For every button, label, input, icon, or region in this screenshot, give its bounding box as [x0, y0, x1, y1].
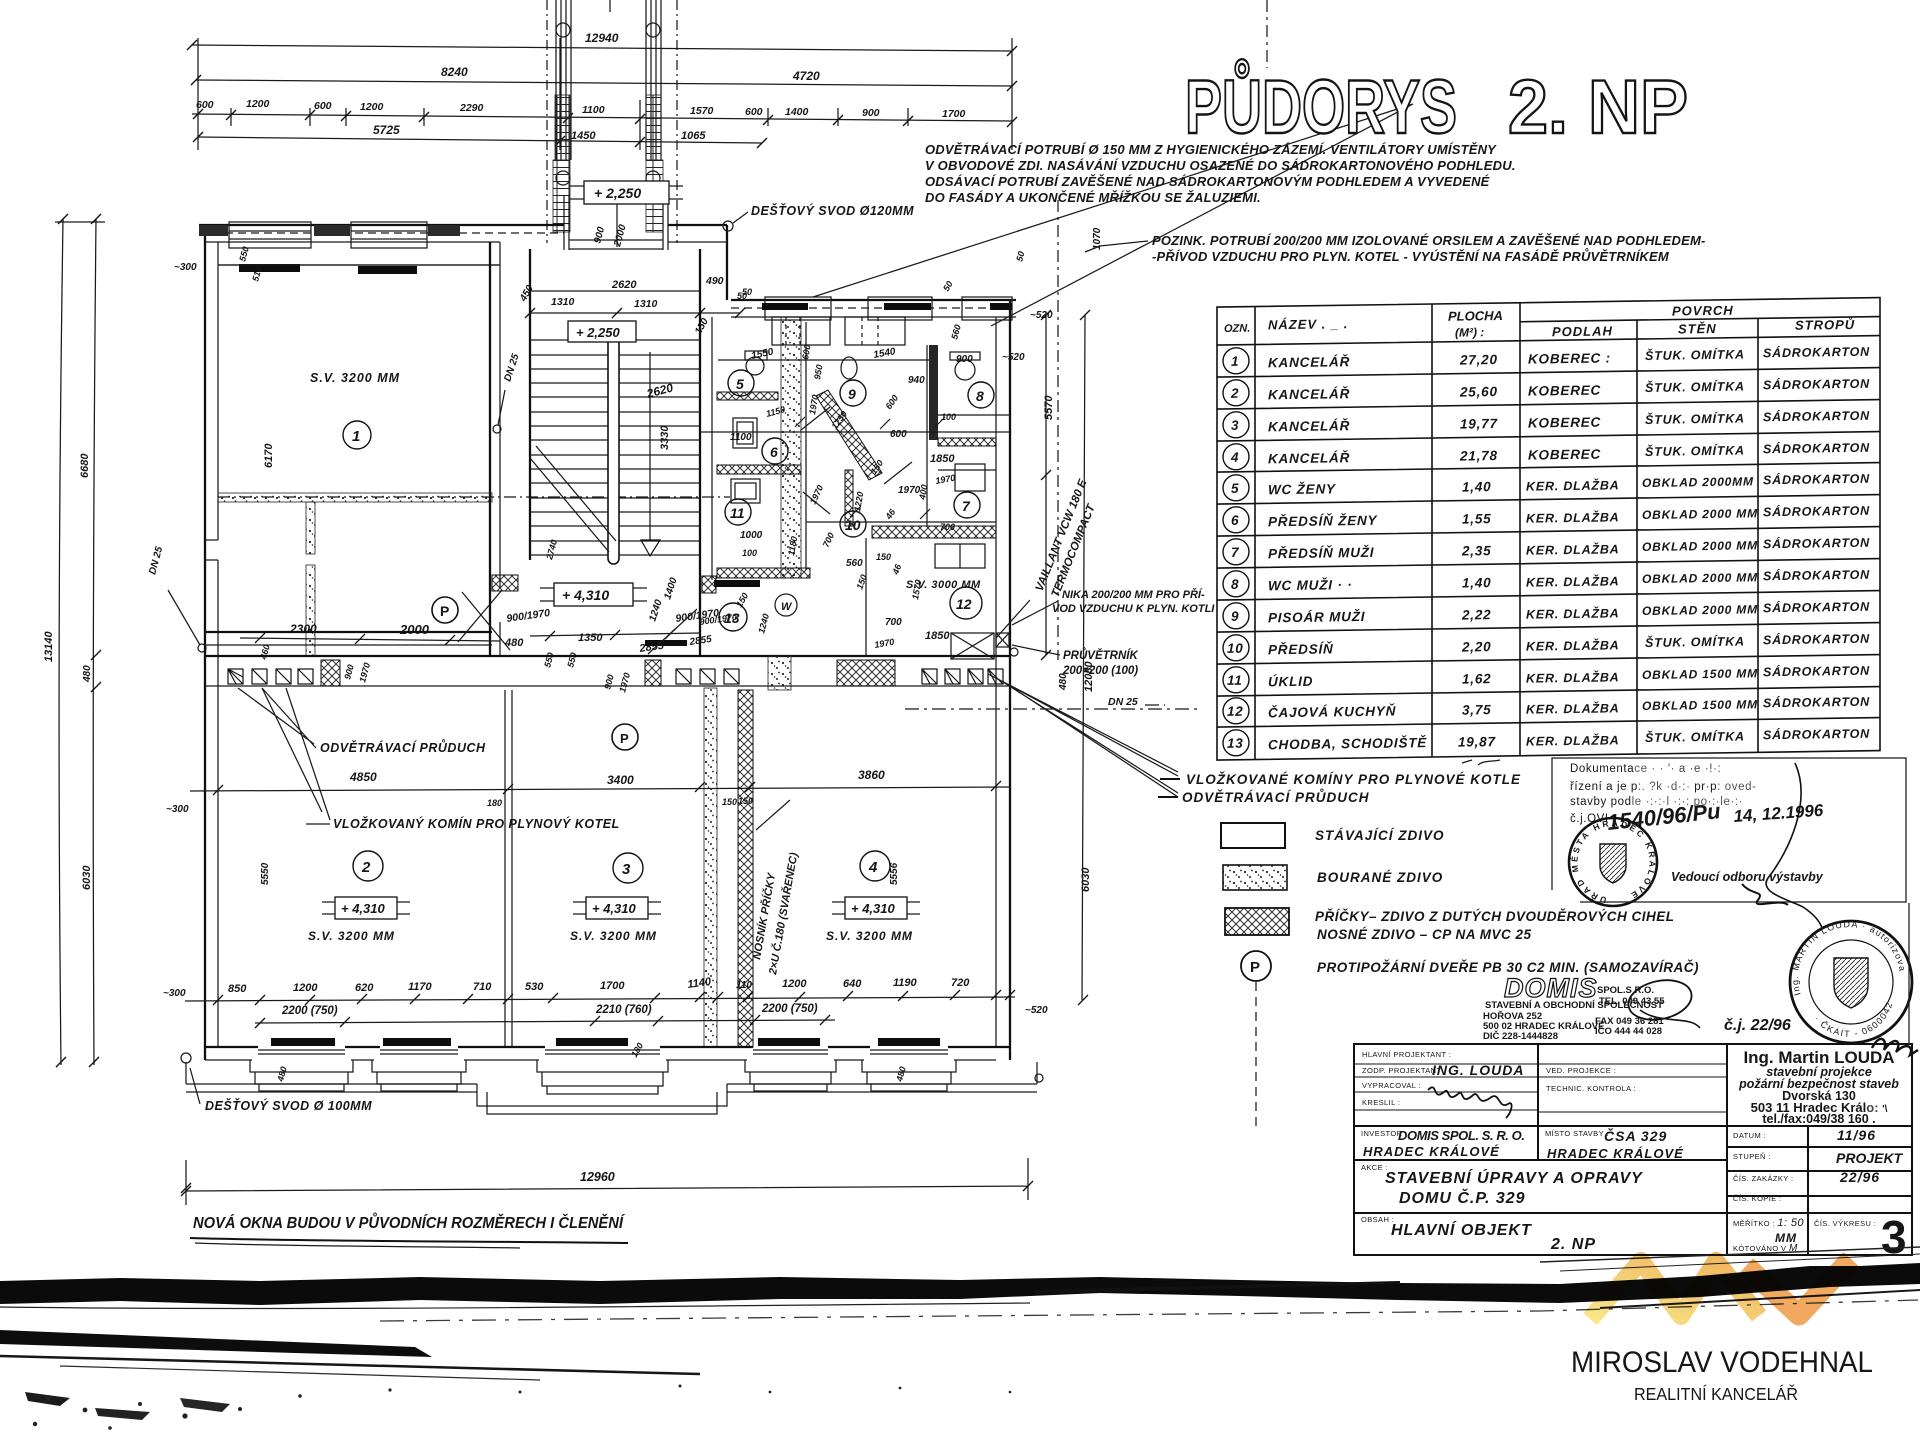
svg-text:2210 (760): 2210 (760) — [595, 1004, 652, 1016]
svg-text:PLOCHA: PLOCHA — [1448, 308, 1503, 324]
svg-text:2,20: 2,20 — [1461, 639, 1491, 654]
svg-text:6030: 6030 — [81, 865, 93, 890]
svg-text:PRŮVĚTRNÍK: PRŮVĚTRNÍK — [1063, 648, 1138, 662]
svg-text:OBKLAD 1500 MM: OBKLAD 1500 MM — [1642, 697, 1758, 713]
svg-text:3,75: 3,75 — [1462, 702, 1491, 717]
svg-text:13: 13 — [1227, 736, 1244, 751]
svg-text:HRADEC KRÁLOVÉ: HRADEC KRÁLOVÉ — [1363, 1144, 1500, 1159]
svg-text:TEL. 049 43 55: TEL. 049 43 55 — [1599, 996, 1665, 1007]
svg-text:150: 150 — [722, 797, 737, 807]
svg-text:2. NP: 2. NP — [1508, 65, 1688, 150]
svg-text:8: 8 — [1231, 577, 1239, 592]
svg-text:3: 3 — [1231, 418, 1239, 433]
svg-text:620: 620 — [355, 982, 374, 994]
svg-text:ŠTUK. OMÍTKA: ŠTUK. OMÍTKA — [1645, 379, 1745, 395]
svg-text:WC MUŽI · ·: WC MUŽI · · — [1268, 577, 1353, 593]
svg-text:POVRCH: POVRCH — [1672, 303, 1734, 319]
svg-text:SPOL.S R.O.: SPOL.S R.O. — [1597, 985, 1654, 996]
svg-text:OBKLAD 2000 MM: OBKLAD 2000 MM — [1642, 506, 1758, 522]
svg-text:150: 150 — [876, 552, 891, 562]
svg-text:DATUM :: DATUM : — [1733, 1131, 1766, 1140]
svg-text:11: 11 — [1227, 673, 1243, 688]
svg-text:+ 4,310: + 4,310 — [341, 901, 386, 916]
svg-text:TECHNIC. KONTROLA :: TECHNIC. KONTROLA : — [1546, 1084, 1636, 1093]
svg-text:600: 600 — [890, 429, 907, 440]
svg-text:KANCELÁŘ: KANCELÁŘ — [1268, 418, 1350, 434]
svg-text:S.V. 3200 MM: S.V. 3200 MM — [826, 929, 913, 943]
svg-text:tel./fax:049/38 160 .: tel./fax:049/38 160 . — [1762, 1112, 1875, 1126]
svg-text:KOBEREC: KOBEREC — [1528, 415, 1601, 431]
svg-text:2200 (750): 2200 (750) — [761, 1003, 818, 1015]
svg-text:12: 12 — [956, 596, 972, 612]
svg-text:Dokumentace · · '· a ·e: Dokumentace · · '· a ·e ·!·: — [1570, 763, 1721, 775]
svg-text:KER. DLAŽBA: KER. DLAŽBA — [1526, 732, 1620, 748]
svg-text:OZN.: OZN. — [1224, 323, 1250, 335]
svg-text:6170: 6170 — [263, 443, 275, 468]
svg-text:1200: 1200 — [246, 98, 270, 110]
svg-text:4: 4 — [1230, 450, 1239, 465]
svg-text:6030: 6030 — [1080, 867, 1092, 892]
svg-text:6680: 6680 — [79, 453, 91, 478]
svg-text:2,22: 2,22 — [1461, 607, 1491, 622]
svg-text:850: 850 — [228, 983, 247, 995]
svg-text:POZINK. POTRUBÍ 200/200 MM IZO: POZINK. POTRUBÍ 200/200 MM IZOLOVANÉ ORS… — [1152, 233, 1706, 248]
svg-text:10: 10 — [845, 517, 861, 533]
svg-text:SÁDROKARTON: SÁDROKARTON — [1763, 344, 1870, 361]
svg-text:STROPŮ: STROPŮ — [1795, 316, 1855, 333]
svg-text:PŘEDSÍŇ: PŘEDSÍŇ — [1268, 641, 1334, 657]
svg-text:SÁDROKARTON: SÁDROKARTON — [1763, 694, 1870, 711]
svg-text:2: 2 — [361, 859, 371, 876]
svg-text:1000: 1000 — [740, 530, 763, 541]
svg-text:CHODBA, SCHODIŠTĚ: CHODBA, SCHODIŠTĚ — [1268, 735, 1427, 752]
svg-text:DOMIS: DOMIS — [1504, 973, 1598, 1003]
svg-text:5: 5 — [1231, 481, 1239, 496]
svg-text:3400: 3400 — [607, 773, 634, 787]
svg-text:ÚKLID: ÚKLID — [1268, 674, 1313, 690]
svg-text:12: 12 — [1227, 704, 1244, 719]
svg-text:SÁDROKARTON: SÁDROKARTON — [1763, 408, 1870, 425]
svg-text:1065: 1065 — [681, 130, 706, 142]
svg-text:SÁDROKARTON: SÁDROKARTON — [1763, 726, 1870, 743]
svg-text:PROJEKT: PROJEKT — [1836, 1150, 1904, 1166]
svg-text:S.V. 3200 MM: S.V. 3200 MM — [308, 929, 395, 943]
svg-text:110: 110 — [736, 980, 752, 991]
svg-text:13140: 13140 — [43, 631, 55, 662]
svg-text:SÁDROKARTON: SÁDROKARTON — [1763, 471, 1870, 488]
svg-text:KOBEREC: KOBEREC — [1528, 383, 1601, 399]
svg-text:KER. DLAŽBA: KER. DLAŽBA — [1526, 477, 1620, 493]
svg-text:OBKLAD 1500 MM: OBKLAD 1500 MM — [1642, 666, 1758, 682]
svg-text:1200: 1200 — [360, 101, 384, 113]
svg-text:2,35: 2,35 — [1461, 543, 1491, 558]
svg-text:2. NP: 2. NP — [1550, 1236, 1596, 1253]
svg-text:KER. DLAŽBA: KER. DLAŽBA — [1526, 605, 1620, 621]
svg-text:STAVEBNÍ ÚPRAVY A OPRAVY: STAVEBNÍ ÚPRAVY A OPRAVY — [1385, 1168, 1643, 1187]
svg-text:ŠTUK. OMÍTKA: ŠTUK. OMÍTKA — [1645, 347, 1745, 363]
svg-text:180: 180 — [487, 798, 502, 808]
svg-text:ODVĚTRÁVACÍ POTRUBÍ Ø 150 MM Z: ODVĚTRÁVACÍ POTRUBÍ Ø 150 MM Z HYGIENICK… — [925, 142, 1497, 157]
svg-text:SÁDROKARTON: SÁDROKARTON — [1763, 376, 1870, 393]
svg-text:P: P — [1250, 959, 1260, 976]
svg-text:PŮDORYS: PŮDORYS — [1185, 60, 1457, 150]
svg-text:HLAVNÍ PROJEKTANT :: HLAVNÍ PROJEKTANT : — [1362, 1050, 1451, 1059]
svg-text:900: 900 — [956, 354, 973, 365]
svg-text:DOMIS SPOL. S. R. O.: DOMIS SPOL. S. R. O. — [1398, 1128, 1526, 1143]
svg-text:KER. DLAŽBA: KER. DLAŽBA — [1526, 637, 1620, 653]
svg-text:ČSA 329: ČSA 329 — [1604, 1127, 1667, 1144]
svg-text:DEŠŤOVÝ SVOD Ø120MM: DEŠŤOVÝ SVOD Ø120MM — [751, 203, 914, 218]
svg-text:+ 4,310: + 4,310 — [851, 901, 896, 916]
svg-text:KOBEREC: KOBEREC — [1528, 447, 1601, 463]
svg-text:NIKA 200/200 MM PRO PŘÍ-: NIKA 200/200 MM PRO PŘÍ- — [1062, 588, 1205, 601]
svg-text:SÁDROKARTON: SÁDROKARTON — [1763, 503, 1870, 520]
svg-text:700: 700 — [940, 522, 955, 532]
svg-text:~520: ~520 — [1002, 352, 1025, 363]
svg-text:VYPRACOVAL :: VYPRACOVAL : — [1362, 1081, 1421, 1090]
svg-text:11: 11 — [730, 505, 745, 521]
svg-text:P: P — [620, 731, 629, 746]
svg-text:PŘÍČKY– ZDIVO Z DUTÝCH DVOUDĚR: PŘÍČKY– ZDIVO Z DUTÝCH DVOUDĚROVÝCH CIHE… — [1315, 909, 1675, 924]
svg-text:ŠTUK. OMÍTKA: ŠTUK. OMÍTKA — [1645, 634, 1745, 650]
svg-text:NOVÁ OKNA BUDOU V PŮVODNÍCH RO: NOVÁ OKNA BUDOU V PŮVODNÍCH ROZMĚRECH I … — [193, 1213, 626, 1232]
svg-text:2290: 2290 — [459, 102, 484, 114]
svg-text:1850: 1850 — [925, 630, 950, 642]
svg-text:KANCELÁŘ: KANCELÁŘ — [1268, 354, 1350, 370]
svg-text:1,40: 1,40 — [1462, 479, 1491, 494]
svg-text:7: 7 — [1231, 545, 1240, 560]
svg-text:VOD VZDUCHU K PLYN. KOTLI: VOD VZDUCHU K PLYN. KOTLI — [1052, 603, 1215, 615]
svg-text:+ 2,250: + 2,250 — [576, 325, 621, 340]
svg-text:SÁDROKARTON: SÁDROKARTON — [1763, 440, 1870, 457]
svg-text:P: P — [440, 603, 449, 619]
svg-text:1700: 1700 — [600, 980, 625, 992]
svg-text:DOMU Č.P. 329: DOMU Č.P. 329 — [1399, 1188, 1526, 1207]
svg-text:ODVĚTRÁVACÍ PRŮDUCH: ODVĚTRÁVACÍ PRŮDUCH — [320, 739, 486, 755]
svg-text:9: 9 — [848, 386, 856, 402]
svg-text:DIČ 228-1444828: DIČ 228-1444828 — [1483, 1030, 1558, 1042]
svg-text:6: 6 — [1231, 513, 1239, 528]
svg-text:1310: 1310 — [551, 296, 575, 308]
svg-text:600: 600 — [745, 106, 763, 118]
svg-text:1700: 1700 — [942, 108, 966, 120]
svg-text:~300: ~300 — [166, 804, 189, 815]
svg-text:9: 9 — [1231, 609, 1239, 624]
svg-text:ŠTUK. OMÍTKA: ŠTUK. OMÍTKA — [1645, 411, 1745, 427]
svg-text:1450: 1450 — [571, 130, 596, 142]
svg-text:ING. LOUDA: ING. LOUDA — [1432, 1062, 1524, 1078]
svg-text:3860: 3860 — [858, 768, 885, 782]
svg-text:710: 710 — [473, 981, 492, 993]
svg-text:DN 25: DN 25 — [1108, 696, 1138, 708]
svg-text:6: 6 — [770, 444, 778, 460]
svg-text:940: 940 — [908, 375, 925, 386]
svg-text:ČÍS. ZAKÁZKY :: ČÍS. ZAKÁZKY : — [1733, 1174, 1793, 1183]
svg-text:č.j. 22/96: č.j. 22/96 — [1724, 1017, 1791, 1034]
svg-text:11/96: 11/96 — [1837, 1127, 1876, 1143]
svg-text:25,60: 25,60 — [1459, 384, 1498, 400]
svg-text:27,20: 27,20 — [1459, 352, 1498, 368]
svg-text:HRADEC KRÁLOVÉ: HRADEC KRÁLOVÉ — [1547, 1146, 1684, 1161]
svg-text:STUPEŇ :: STUPEŇ : — [1733, 1152, 1771, 1161]
svg-text:1200: 1200 — [782, 978, 807, 990]
svg-text:200×200 (100): 200×200 (100) — [1062, 665, 1138, 677]
svg-text:NÁZEV . _ .: NÁZEV . _ . — [1268, 316, 1348, 332]
svg-text:2300: 2300 — [289, 622, 317, 636]
svg-text:OBKLAD 2000 MM: OBKLAD 2000 MM — [1642, 538, 1758, 554]
svg-text:19,77: 19,77 — [1460, 416, 1498, 432]
svg-text:ŠTUK. OMÍTKA: ŠTUK. OMÍTKA — [1645, 729, 1745, 745]
svg-text:1100: 1100 — [730, 432, 752, 443]
svg-text:530: 530 — [525, 981, 544, 993]
svg-text:900: 900 — [862, 107, 880, 119]
svg-text:1: 1 — [1231, 354, 1239, 369]
svg-text:PŘEDSÍŇ ŽENY: PŘEDSÍŇ ŽENY — [1268, 513, 1379, 530]
svg-text:~520: ~520 — [1025, 1005, 1048, 1016]
svg-text:SÁDROKARTON: SÁDROKARTON — [1763, 599, 1870, 616]
svg-text:ČÍS. VÝKRESU :: ČÍS. VÝKRESU : — [1814, 1219, 1876, 1228]
svg-text:1570: 1570 — [690, 105, 714, 117]
svg-text:3330: 3330 — [659, 425, 671, 450]
svg-text:2200 (750): 2200 (750) — [281, 1005, 338, 1017]
svg-text:2000: 2000 — [399, 622, 430, 637]
svg-text:22/96: 22/96 — [1839, 1169, 1880, 1185]
svg-text:~520: ~520 — [1030, 310, 1053, 321]
svg-text:(M²) :: (M²) : — [1455, 325, 1484, 339]
svg-text:OBKLAD 2000 MM: OBKLAD 2000 MM — [1642, 570, 1758, 586]
svg-text:DEŠŤOVÝ SVOD Ø 100MM: DEŠŤOVÝ SVOD Ø 100MM — [205, 1098, 372, 1113]
svg-text:KER. DLAŽBA: KER. DLAŽBA — [1526, 669, 1620, 685]
svg-text:1350: 1350 — [578, 632, 603, 644]
svg-text:560: 560 — [846, 558, 863, 569]
svg-text:5556: 5556 — [889, 862, 900, 885]
svg-text:640: 640 — [843, 978, 862, 990]
svg-text:1400: 1400 — [785, 106, 809, 118]
svg-text:12940: 12940 — [585, 31, 619, 45]
svg-text:KER. DLAŽBA: KER. DLAŽBA — [1526, 509, 1620, 525]
svg-text:1100: 1100 — [582, 104, 605, 116]
svg-text:1200: 1200 — [293, 982, 318, 994]
svg-text:1190: 1190 — [893, 977, 918, 989]
svg-text:~300: ~300 — [174, 262, 197, 273]
svg-text:W: W — [781, 601, 793, 613]
svg-text:S.V. 3200 MM: S.V. 3200 MM — [310, 371, 400, 385]
svg-text:SÁDROKARTON: SÁDROKARTON — [1763, 535, 1870, 552]
svg-text:~300: ~300 — [163, 988, 186, 999]
svg-text:V OBVODOVÉ ZDI. NASÁVÁNÍ VZDUC: V OBVODOVÉ ZDI. NASÁVÁNÍ VZDUCHU OSAZENÉ… — [925, 158, 1516, 173]
svg-text:50: 50 — [737, 291, 747, 301]
svg-text:MÍSTO STAVBY :: MÍSTO STAVBY : — [1545, 1129, 1609, 1138]
svg-text:720: 720 — [951, 977, 970, 989]
svg-text:VLOŽKOVANÉ KOMÍNY PRO PLYNOV: VLOŽKOVANÉ KOMÍNY PRO PLYNOVÉ KOTLE — [1186, 772, 1521, 787]
svg-text:1310: 1310 — [634, 298, 658, 310]
svg-text:100: 100 — [742, 548, 757, 558]
svg-text:PŘEDSÍŇ MUŽI: PŘEDSÍŇ MUŽI — [1268, 545, 1374, 562]
svg-text:SÁDROKARTON: SÁDROKARTON — [1763, 663, 1870, 680]
svg-text:19,87: 19,87 — [1458, 734, 1496, 750]
svg-text:5570: 5570 — [1043, 395, 1055, 420]
svg-text:4: 4 — [868, 859, 878, 876]
svg-text:IČO 444 44 028: IČO 444 44 028 — [1595, 1025, 1662, 1037]
svg-text:1170: 1170 — [408, 981, 433, 993]
svg-text:600: 600 — [196, 99, 214, 111]
svg-text:8: 8 — [976, 388, 984, 404]
svg-text:KRESLIL :: KRESLIL : — [1362, 1098, 1400, 1107]
svg-text:řízení a je p:. ?k ·d·:· pr·p:: řízení a je p:. ?k ·d·:· pr·p: oved- — [1570, 781, 1757, 793]
svg-text:4720: 4720 — [792, 69, 820, 83]
svg-text:ČAJOVÁ KUCHYŇ: ČAJOVÁ KUCHYŇ — [1268, 704, 1396, 721]
svg-text:MIROSLAV VODEHNAL: MIROSLAV VODEHNAL — [1571, 1346, 1873, 1379]
svg-text:+ 2,250: + 2,250 — [594, 185, 641, 201]
svg-text:PODLAH: PODLAH — [1552, 323, 1613, 339]
svg-text:8240: 8240 — [441, 65, 468, 79]
svg-text:5550: 5550 — [260, 862, 271, 885]
svg-text:1,62: 1,62 — [1462, 671, 1491, 686]
svg-text:KANCELÁŘ: KANCELÁŘ — [1268, 386, 1350, 402]
svg-text:5725: 5725 — [373, 123, 400, 137]
svg-text:ČÍS. KOPIE :: ČÍS. KOPIE : — [1733, 1194, 1782, 1203]
svg-text:Vedoucí odboru výstavby: Vedoucí odboru výstavby — [1671, 870, 1824, 884]
svg-text:HLAVNÍ OBJEKT: HLAVNÍ OBJEKT — [1391, 1220, 1532, 1239]
svg-text:DO FASÁDY A UKONČENÉ MŘÍŽKOU S: DO FASÁDY A UKONČENÉ MŘÍŽKOU SE ŽALUZIEM… — [925, 190, 1261, 205]
svg-text:S.V. 3200 MM: S.V. 3200 MM — [570, 929, 657, 943]
svg-text:STÁVAJÍCÍ ZDIVO: STÁVAJÍCÍ ZDIVO — [1315, 828, 1445, 843]
svg-text:OBKLAD 2000 MM: OBKLAD 2000 MM — [1642, 602, 1758, 618]
svg-text:700: 700 — [885, 617, 902, 628]
svg-text:7: 7 — [962, 498, 971, 514]
svg-text:WC ŽENY: WC ŽENY — [1268, 481, 1337, 497]
svg-text:+ 4,310: + 4,310 — [592, 901, 637, 916]
svg-text:MĚŘÍTKO : 1: 50: MĚŘÍTKO : 1: 50 — [1733, 1217, 1804, 1229]
svg-text:VED. PROJEKCE :: VED. PROJEKCE : — [1546, 1066, 1616, 1075]
svg-text:OBKLAD 2000MM: OBKLAD 2000MM — [1642, 474, 1754, 490]
svg-text:21,78: 21,78 — [1459, 448, 1498, 464]
svg-text:+ 4,310: + 4,310 — [562, 587, 609, 603]
svg-text:KOBEREC :: KOBEREC : — [1528, 350, 1611, 366]
svg-text:10: 10 — [1227, 641, 1244, 656]
svg-text:1,55: 1,55 — [1462, 511, 1491, 526]
svg-text:100: 100 — [941, 412, 956, 422]
svg-text:AKCE :: AKCE : — [1361, 1163, 1388, 1172]
svg-text:SÁDROKARTON: SÁDROKARTON — [1763, 567, 1870, 584]
svg-text:1: 1 — [352, 428, 360, 445]
svg-text:STĚN: STĚN — [1678, 321, 1717, 337]
svg-text:-PŘÍVOD VZDUCHU PRO PLYN. KOTE: -PŘÍVOD VZDUCHU PRO PLYN. KOTEL - VYÚSTĚ… — [1152, 248, 1670, 264]
svg-text:490: 490 — [705, 275, 724, 287]
svg-text:2: 2 — [1230, 386, 1239, 401]
svg-text:12960: 12960 — [580, 1170, 615, 1184]
svg-text:REALITNÍ KANCELÁŘ: REALITNÍ KANCELÁŘ — [1634, 1384, 1798, 1404]
svg-text:MM: MM — [1775, 1231, 1797, 1245]
svg-text:2620: 2620 — [611, 279, 637, 291]
svg-text:KER. DLAŽBA: KER. DLAŽBA — [1526, 700, 1620, 716]
svg-text:SÁDROKARTON: SÁDROKARTON — [1763, 631, 1870, 648]
svg-text:KER. DLAŽBA: KER. DLAŽBA — [1526, 573, 1620, 589]
svg-text:480: 480 — [82, 665, 93, 683]
svg-text:1850: 1850 — [930, 453, 955, 465]
svg-text:ODSÁVACÍ POTRUBÍ ZAVĚŠENÉ NAD: ODSÁVACÍ POTRUBÍ ZAVĚŠENÉ NAD SÁDROKARTO… — [925, 174, 1490, 189]
svg-text:1,40: 1,40 — [1462, 575, 1491, 590]
svg-text:PISOÁR MUŽI: PISOÁR MUŽI — [1268, 609, 1365, 625]
svg-text:KANCELÁŘ: KANCELÁŘ — [1268, 450, 1350, 466]
svg-text:3: 3 — [622, 861, 631, 878]
svg-text:ŠTUK. OMÍTKA: ŠTUK. OMÍTKA — [1645, 443, 1745, 459]
svg-text:4850: 4850 — [349, 770, 377, 784]
svg-text:VLOŽKOVANÝ KOMÍN PRO PLYNOVÝ K: VLOŽKOVANÝ KOMÍN PRO PLYNOVÝ KOTEL — [333, 816, 620, 831]
svg-text:BOURANÉ ZDIVO: BOURANÉ ZDIVO — [1317, 870, 1443, 885]
svg-text:5: 5 — [736, 376, 744, 392]
svg-text:NOSNÉ ZDIVO – CP NA MVC 25: NOSNÉ ZDIVO – CP NA MVC 25 — [1317, 927, 1532, 942]
svg-text:OBSAH :: OBSAH : — [1361, 1215, 1394, 1224]
svg-text:KER. DLAŽBA: KER. DLAŽBA — [1526, 541, 1620, 557]
svg-text:ODVĚTRÁVACÍ PRŮDUCH: ODVĚTRÁVACÍ PRŮDUCH — [1182, 789, 1370, 805]
svg-text:600: 600 — [314, 100, 332, 112]
